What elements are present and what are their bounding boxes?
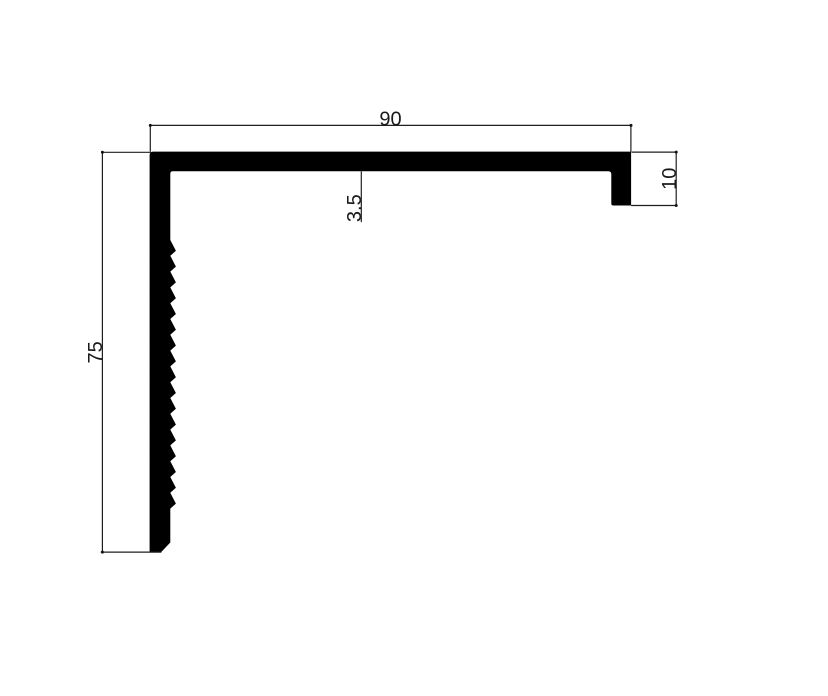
svg-text:75: 75	[85, 341, 107, 363]
svg-text:10: 10	[659, 168, 681, 190]
svg-text:3.5: 3.5	[344, 194, 366, 222]
svg-text:90: 90	[379, 109, 401, 131]
